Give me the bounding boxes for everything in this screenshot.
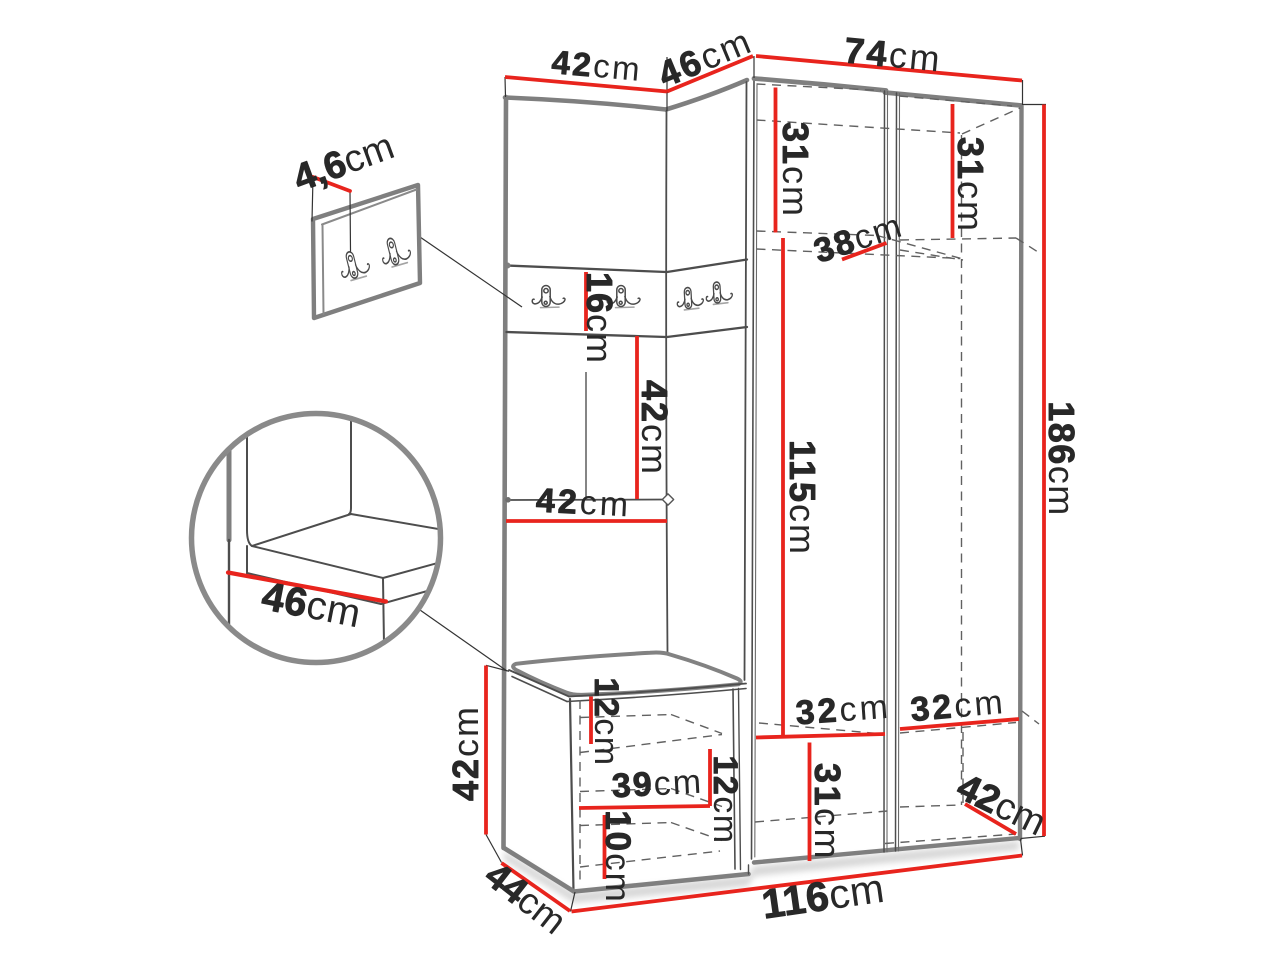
svg-text:42cm: 42cm	[634, 380, 675, 476]
svg-text:12cm: 12cm	[706, 755, 744, 844]
svg-text:31cm: 31cm	[807, 763, 848, 861]
svg-text:12cm: 12cm	[587, 677, 625, 766]
svg-text:31cm: 31cm	[775, 122, 816, 218]
svg-text:31cm: 31cm	[950, 137, 991, 233]
svg-text:42cm: 42cm	[445, 705, 486, 801]
svg-text:39cm: 39cm	[611, 763, 704, 806]
svg-text:32cm: 32cm	[794, 688, 892, 733]
svg-text:10cm: 10cm	[598, 810, 637, 904]
svg-text:186cm: 186cm	[1041, 401, 1082, 517]
svg-text:42cm: 42cm	[535, 482, 632, 525]
svg-text:42cm: 42cm	[550, 43, 644, 88]
svg-text:115cm: 115cm	[782, 440, 823, 556]
svg-text:16cm: 16cm	[579, 272, 620, 364]
